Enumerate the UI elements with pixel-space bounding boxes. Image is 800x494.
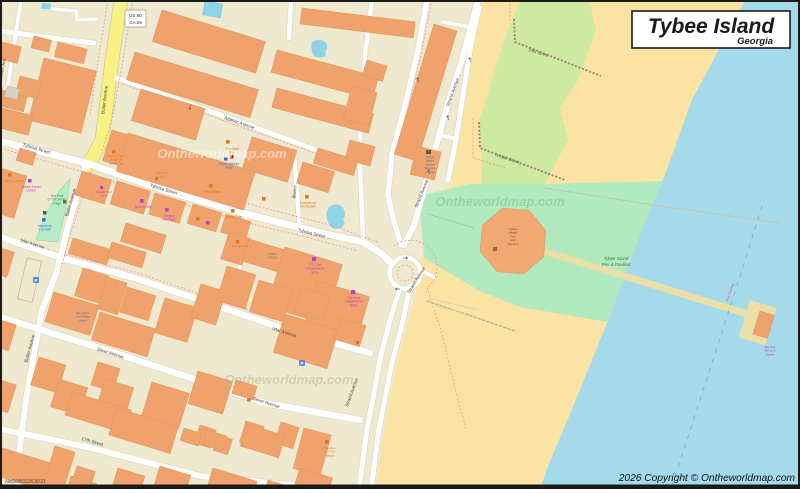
svg-text:Tybee Time: Tybee Time [224,215,241,219]
svg-text:Store: Store [350,303,358,307]
svg-text:Hotel: Hotel [225,166,233,170]
svg-text:Fountain: Fountain [39,228,52,232]
svg-text:Ontheworldmap.com: Ontheworldmap.com [435,194,565,209]
svg-text:P: P [34,278,37,283]
svg-text:Tackle: Tackle [766,352,775,356]
svg-text:Beach: Beach [326,453,335,457]
svg-text:№G0802263031: №G0802263031 [5,479,46,485]
svg-text:House: House [267,256,277,260]
svg-text:Island Gifts: Island Gifts [135,205,152,209]
svg-text:Blanco: Blanco [292,185,298,199]
svg-text:Tybee Island: Tybee Island [604,256,629,261]
svg-text:Center: Center [26,189,37,193]
svg-text:GA 26: GA 26 [129,20,142,25]
svg-text:AJs Dockside: AJs Dockside [5,179,24,183]
svg-text:Ontheworldmap.com: Ontheworldmap.com [157,146,287,161]
svg-text:Flags: Flags [53,201,61,205]
svg-text:Store: Store [311,270,319,274]
svg-text:Shop: Shop [100,194,108,198]
svg-text:Huc-A-Poos: Huc-A-Poos [232,244,249,248]
svg-text:Ontheworldmap.com: Ontheworldmap.com [224,372,354,387]
svg-text:Island: Island [79,318,88,322]
svg-text:Bar & Grill: Bar & Grill [109,161,123,165]
svg-text:Tybee Island: Tybee Island [648,15,776,38]
svg-text:Pavilion: Pavilion [508,242,519,246]
svg-text:2026 Copyright © Ontheworldmap: 2026 Copyright © Ontheworldmap.com [618,473,796,484]
svg-text:Georgia: Georgia [737,36,773,47]
svg-text:Pier & Pavilion: Pier & Pavilion [602,262,631,267]
svg-text:P: P [300,361,303,366]
svg-text:US 80: US 80 [129,13,142,18]
svg-text:Grill: Grill [159,175,165,179]
svg-text:the Beach: the Beach [301,205,316,209]
svg-text:Boutique: Boutique [162,218,175,222]
svg-text:Wet Willies: Wet Willies [204,190,221,194]
